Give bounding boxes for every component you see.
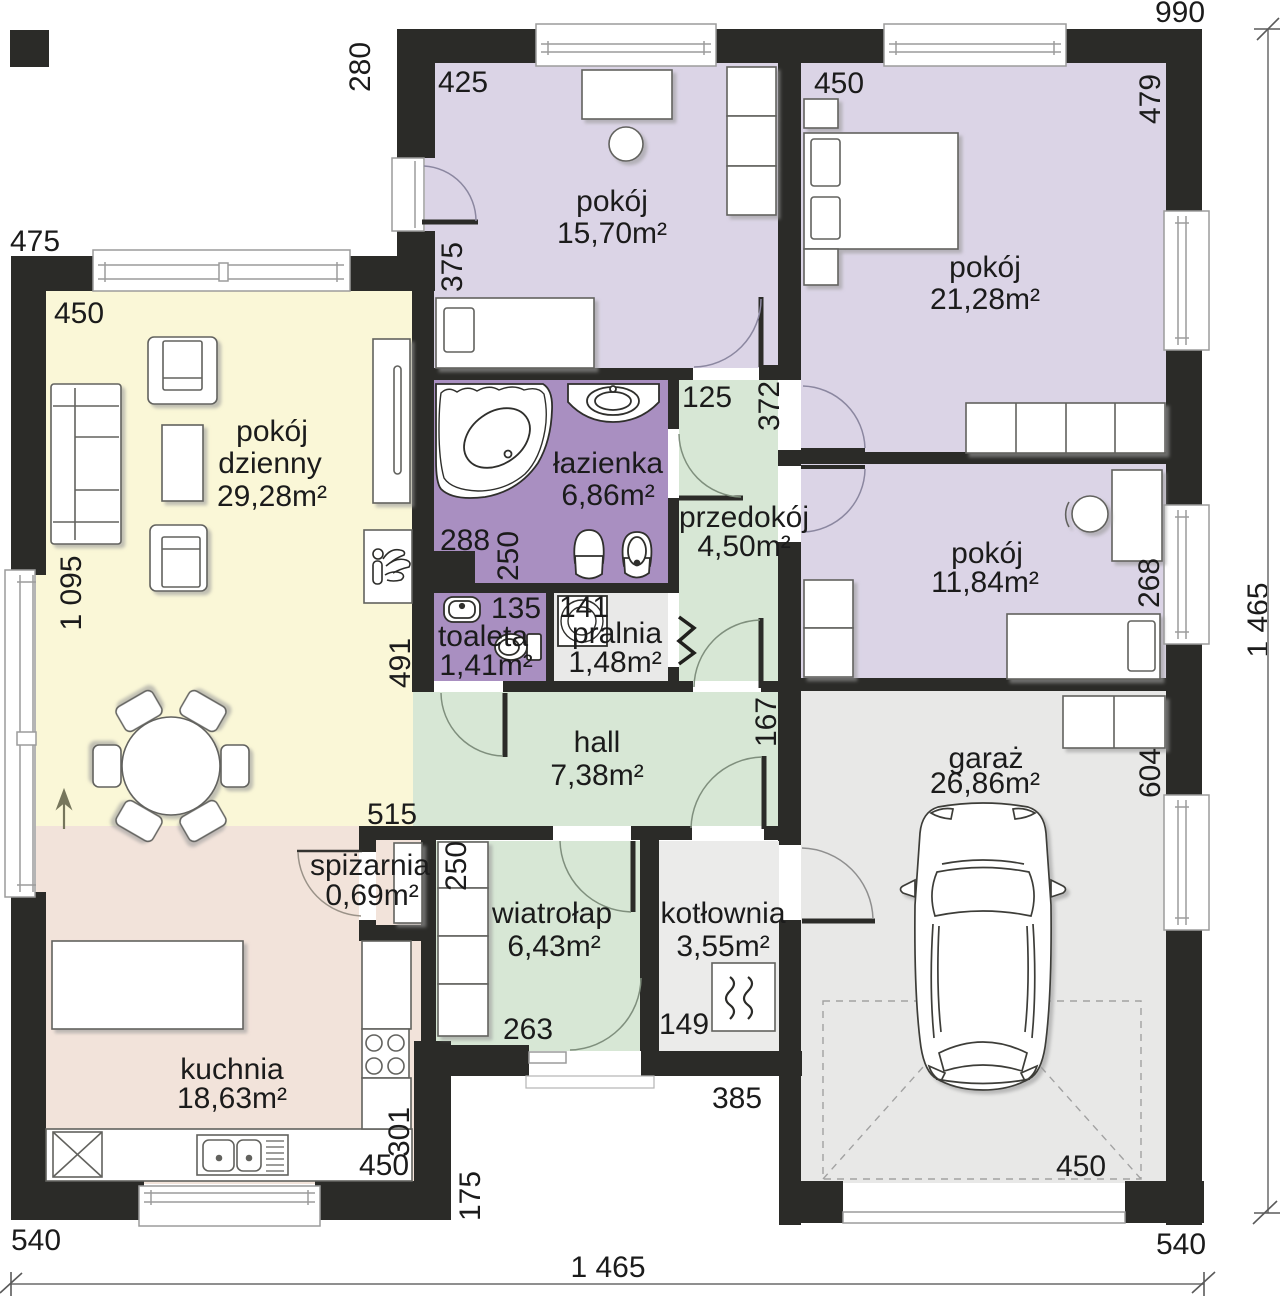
svg-text:1 095: 1 095 [55,555,88,630]
svg-text:250: 250 [492,531,525,581]
svg-text:4,50m²: 4,50m² [697,530,790,563]
svg-text:990: 990 [1155,0,1205,29]
svg-text:6,86m²: 6,86m² [561,479,654,512]
svg-text:175: 175 [454,1171,487,1221]
svg-text:pokój: pokój [236,415,308,448]
svg-text:540: 540 [1156,1228,1206,1261]
svg-text:125: 125 [682,381,732,414]
svg-text:6,43m²: 6,43m² [507,930,600,963]
svg-text:1 465: 1 465 [570,1251,645,1284]
svg-text:141: 141 [559,591,609,624]
svg-text:0,69m²: 0,69m² [325,879,418,912]
svg-text:1,41m²: 1,41m² [439,649,532,682]
svg-text:450: 450 [54,297,104,330]
svg-text:135: 135 [491,592,541,625]
svg-text:288: 288 [440,524,490,557]
svg-text:167: 167 [750,697,783,747]
svg-text:pokój: pokój [949,251,1021,284]
svg-text:450: 450 [359,1149,409,1182]
svg-text:1 465: 1 465 [1242,582,1275,657]
svg-text:515: 515 [367,798,417,831]
svg-text:604: 604 [1134,748,1167,798]
svg-text:15,70m²: 15,70m² [557,217,667,250]
svg-text:11,84m²: 11,84m² [931,566,1039,599]
svg-text:wiatrołap: wiatrołap [491,897,612,930]
svg-text:491: 491 [384,638,417,688]
svg-text:450: 450 [814,67,864,100]
svg-text:263: 263 [503,1013,553,1046]
svg-text:łazienka: łazienka [553,447,663,480]
svg-text:375: 375 [436,242,469,292]
svg-text:280: 280 [344,42,377,92]
svg-text:475: 475 [10,225,60,258]
svg-text:3,55m²: 3,55m² [676,930,769,963]
svg-text:385: 385 [712,1082,762,1115]
svg-text:29,28m²: 29,28m² [217,480,327,513]
svg-text:18,63m²: 18,63m² [177,1082,287,1115]
svg-text:372: 372 [753,381,786,431]
svg-text:26,86m²: 26,86m² [930,767,1040,800]
svg-text:268: 268 [1133,558,1166,608]
svg-text:540: 540 [11,1224,61,1257]
svg-text:450: 450 [1056,1150,1106,1183]
svg-text:pokój: pokój [576,185,648,218]
svg-text:kotłownia: kotłownia [660,897,785,930]
svg-text:149: 149 [659,1008,709,1041]
svg-text:21,28m²: 21,28m² [930,283,1040,316]
svg-text:spiżarnia: spiżarnia [310,849,430,882]
svg-text:479: 479 [1134,74,1167,124]
svg-text:250: 250 [440,841,473,891]
svg-text:dzienny: dzienny [218,447,321,480]
svg-text:1,48m²: 1,48m² [568,646,661,679]
svg-text:7,38m²: 7,38m² [550,759,643,792]
svg-text:425: 425 [438,66,488,99]
svg-text:hall: hall [574,726,621,759]
